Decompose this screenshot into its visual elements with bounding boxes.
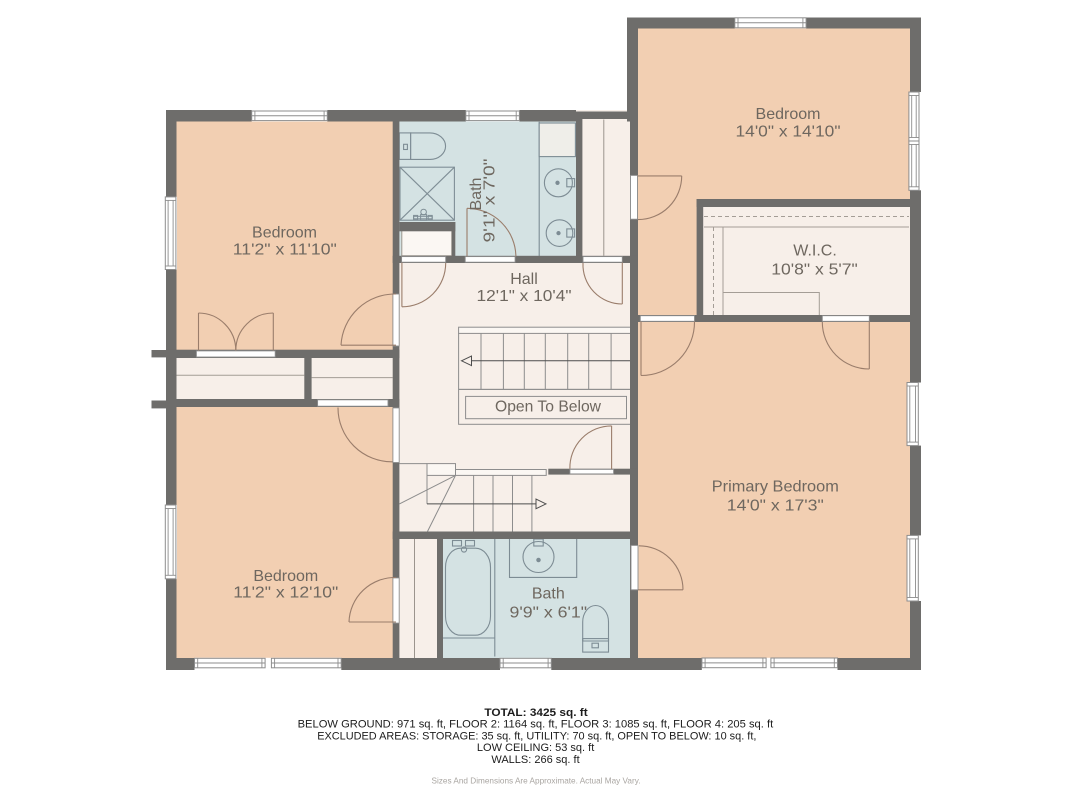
svg-text:Bedroom: Bedroom [253,568,318,585]
svg-text:Bedroom: Bedroom [252,224,317,241]
svg-text:10'8" x 5'7": 10'8" x 5'7" [771,262,858,279]
svg-text:BELOW GROUND: 971 sq. ft, FLOO: BELOW GROUND: 971 sq. ft, FLOOR 2: 1164 … [298,718,774,730]
svg-text:Sizes And Dimensions Are Appro: Sizes And Dimensions Are Approximate. Ac… [432,776,641,786]
svg-text:Open To Below: Open To Below [495,399,601,416]
svg-text:Bedroom: Bedroom [756,106,821,123]
svg-text:Primary Bedroom: Primary Bedroom [712,479,839,496]
svg-text:12'1" x 10'4": 12'1" x 10'4" [477,288,572,305]
svg-text:11'2" x 12'10": 11'2" x 12'10" [233,585,338,602]
svg-text:14'0" x 14'10": 14'0" x 14'10" [736,124,841,141]
svg-text:EXCLUDED AREAS: STORAGE: 35 sq: EXCLUDED AREAS: STORAGE: 35 sq. ft, UTIL… [317,730,756,742]
svg-text:W.I.C.: W.I.C. [793,243,837,260]
svg-text:Bath: Bath [532,586,565,603]
svg-text:9'9" x 6'1": 9'9" x 6'1" [510,605,588,622]
svg-text:14'0" x 17'3": 14'0" x 17'3" [727,498,824,515]
svg-text:LOW CEILING: 53 sq. ft: LOW CEILING: 53 sq. ft [477,742,594,754]
svg-text:Hall: Hall [510,271,538,288]
svg-text:11'2" x 11'10": 11'2" x 11'10" [233,242,337,259]
svg-text:WALLS: 266 sq. ft: WALLS: 266 sq. ft [491,754,579,766]
svg-text:TOTAL: 3425 sq. ft: TOTAL: 3425 sq. ft [484,707,588,719]
svg-text:9'1" x 7'0": 9'1" x 7'0" [481,159,498,243]
